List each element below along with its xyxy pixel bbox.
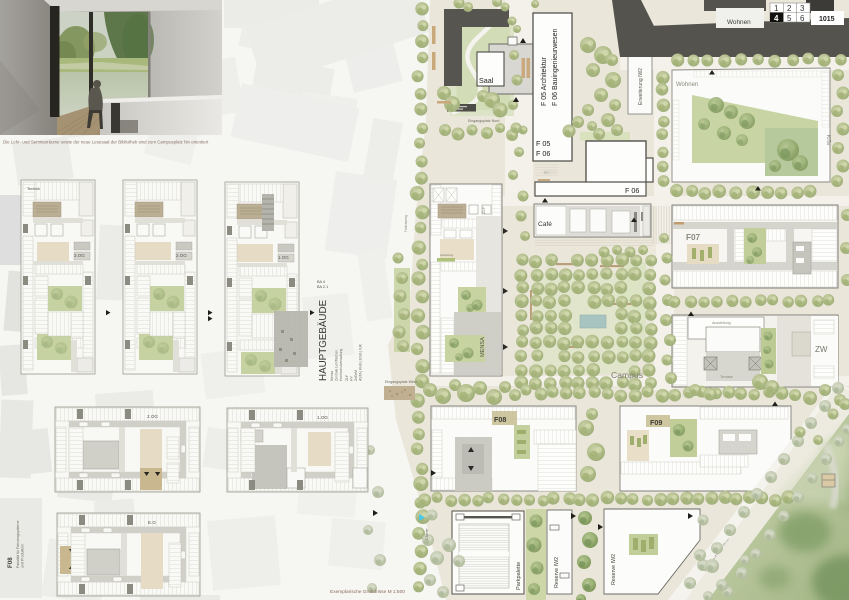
svg-text:2: 2 <box>787 4 792 13</box>
svg-text:Eingangsplatz Nord: Eingangsplatz Nord <box>468 119 499 123</box>
svg-text:Wohnen: Wohnen <box>662 35 668 55</box>
svg-text:6: 6 <box>800 14 805 23</box>
svg-text:ZeDeM: ZeDeM <box>354 370 358 381</box>
svg-text:Reserve IW2: Reserve IW2 <box>611 554 617 585</box>
svg-text:2-Meter: 2-Meter <box>425 527 429 540</box>
svg-text:Technik: Technik <box>27 187 40 191</box>
svg-text:HV: HV <box>350 376 354 381</box>
svg-text:Saal: Saal <box>479 76 494 85</box>
svg-text:Zentrale Lehrflächen: Zentrale Lehrflächen <box>335 350 339 381</box>
svg-text:1.OG: 1.OG <box>317 415 328 420</box>
svg-text:F09: F09 <box>650 418 662 427</box>
svg-text:Terrasse: Terrasse <box>720 375 733 379</box>
svg-text:Exemplarische Grundrisse M 1:: Exemplarische Grundrisse M 1:500 <box>330 589 405 595</box>
svg-text:Parkpalette: Parkpalette <box>516 562 522 590</box>
svg-text:F 06: F 06 <box>536 149 550 158</box>
svg-text:Anlieferung: Anlieferung <box>440 253 454 257</box>
svg-text:BA 2.1: BA 2.1 <box>317 285 328 289</box>
svg-text:BA 4: BA 4 <box>317 280 325 284</box>
svg-text:F08: F08 <box>494 415 506 424</box>
svg-text:Mensa: Mensa <box>330 371 334 381</box>
svg-text:E.G: E.G <box>148 520 156 525</box>
svg-text:Die Lehr- und Seminarräume sow: Die Lehr- und Seminarräume sowie der neu… <box>3 140 209 145</box>
svg-text:ZLF: ZLF <box>345 375 349 381</box>
svg-text:Fakultät für Fahrzeugsysteme: Fakultät für Fahrzeugsysteme <box>16 520 20 568</box>
svg-text:Ausstellung: Ausstellung <box>712 321 731 325</box>
svg-text:Café: Café <box>538 221 552 228</box>
svg-text:F 05: F 05 <box>536 139 550 148</box>
svg-text:Reserve IW2: Reserve IW2 <box>554 557 560 588</box>
svg-text:Erweiterung IW2: Erweiterung IW2 <box>638 68 644 105</box>
svg-text:F 05 Architektur: F 05 Architektur <box>541 56 548 106</box>
svg-text:Wohnen: Wohnen <box>727 19 751 26</box>
svg-text:HAUPTGEBÄUDE: HAUPTGEBÄUDE <box>318 299 329 381</box>
svg-text:KiTa: KiTa <box>825 135 831 145</box>
svg-text:ZW: ZW <box>815 345 828 354</box>
svg-text:F 06 Bauingenieurwesen: F 06 Bauingenieurwesen <box>552 28 559 106</box>
svg-text:ASTA | KHG | ESG | IUK: ASTA | KHG | ESG | IUK <box>359 343 363 381</box>
svg-text:MENSA: MENSA <box>480 337 486 357</box>
svg-text:1: 1 <box>774 4 779 13</box>
svg-text:F 06: F 06 <box>625 186 639 195</box>
svg-text:4: 4 <box>774 14 779 23</box>
svg-text:1015: 1015 <box>819 16 835 23</box>
svg-text:Fahrradweg: Fahrradweg <box>404 215 408 232</box>
svg-text:F08: F08 <box>7 557 14 568</box>
svg-text:Wohnen: Wohnen <box>676 82 698 88</box>
svg-text:Eingangsplatz West: Eingangsplatz West <box>385 380 417 384</box>
svg-text:Hochschulverwaltung: Hochschulverwaltung <box>339 349 343 381</box>
svg-text:ZLF: ZLF <box>481 206 486 214</box>
svg-text:5: 5 <box>787 14 792 23</box>
svg-text:Campus: Campus <box>611 370 643 380</box>
svg-text:2.OG: 2.OG <box>147 414 158 419</box>
svg-text:und Produktion: und Produktion <box>21 544 25 568</box>
svg-text:F07: F07 <box>686 233 701 242</box>
svg-text:3: 3 <box>800 4 805 13</box>
